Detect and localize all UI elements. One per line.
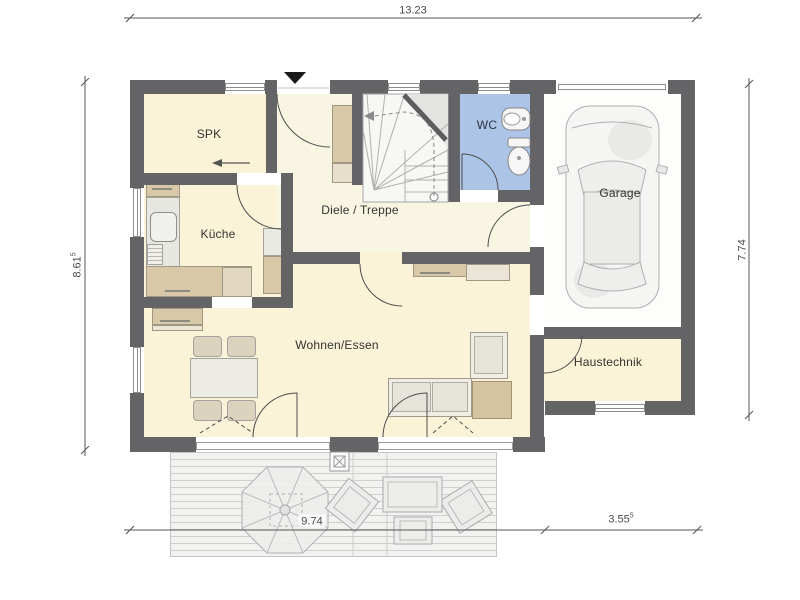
room-label-wc: WC (477, 118, 497, 132)
room-label-wohnen: Wohnen/Essen (295, 338, 379, 352)
dim-right-label: 7.74 (736, 239, 749, 260)
wall (144, 173, 237, 185)
wall (448, 94, 460, 202)
room-label-diele: Diele / Treppe (321, 203, 399, 217)
dining-chair (193, 400, 222, 421)
terrace-french-door (196, 437, 330, 452)
room-label-kueche: Küche (200, 227, 235, 241)
sideboard-top-a (413, 262, 467, 277)
window (225, 80, 265, 94)
wall (144, 297, 212, 308)
kitchen-counter-end (222, 267, 252, 297)
dining-table (190, 358, 258, 398)
window (388, 80, 420, 94)
terrace-deck (170, 452, 497, 557)
kitchen-dishwasher (147, 244, 163, 265)
wc-door-opening (460, 190, 498, 202)
kitchen-sink (150, 212, 177, 242)
wall (352, 94, 363, 185)
window (130, 347, 144, 393)
wall (544, 327, 681, 339)
kitchen-pass-opening (212, 297, 252, 308)
wall (530, 80, 544, 452)
haustechnik-door-opening (530, 295, 544, 335)
wall (252, 297, 293, 308)
cabinet-label-mark (165, 290, 190, 292)
floor-plan: SPK Küche Diele / Treppe WC Garage Wohne… (0, 0, 800, 600)
dining-chair (227, 336, 256, 357)
entrance-door-opening (277, 80, 330, 94)
hall-wardrobe (332, 105, 353, 163)
window (478, 80, 510, 94)
ottoman (472, 381, 512, 419)
wall (281, 252, 360, 264)
dim-top-label: 13.23 (399, 4, 427, 17)
wall (266, 94, 277, 185)
sideboard-left (152, 308, 203, 325)
room-label-haustechnik: Haustechnik (574, 355, 642, 369)
wall (130, 80, 144, 452)
armchair-cushion (474, 336, 503, 374)
floor-haustechnik (544, 339, 681, 401)
cabinet-label-mark (160, 320, 190, 322)
dim-bottom-house-label: 9.74 (298, 515, 325, 528)
window (130, 188, 144, 237)
garage-door-opening (530, 205, 544, 247)
sideboard-left-top (152, 325, 203, 331)
cabinet-label-mark (152, 188, 172, 190)
window (595, 401, 645, 415)
dim-bottom-garage-label: 3.555 (608, 513, 633, 526)
dim-left-label: 8.615 (71, 252, 84, 277)
floor-wc (460, 94, 530, 190)
dining-chair (227, 400, 256, 421)
sideboard-top-b (466, 264, 510, 281)
garage-sectional-door (556, 80, 668, 94)
wall (498, 190, 530, 202)
cabinet-label-mark (420, 272, 450, 274)
wall (681, 80, 695, 415)
dining-chair (193, 336, 222, 357)
terrace-french-door (378, 437, 513, 452)
hall-wardrobe-lower (332, 163, 353, 183)
wall (402, 252, 530, 264)
sofa-cushion (432, 382, 468, 412)
room-label-spk: SPK (197, 127, 222, 141)
kitchen-door-opening (237, 173, 281, 185)
wall (281, 173, 293, 308)
sofa-cushion (392, 382, 431, 412)
room-label-garage: Garage (599, 186, 640, 200)
